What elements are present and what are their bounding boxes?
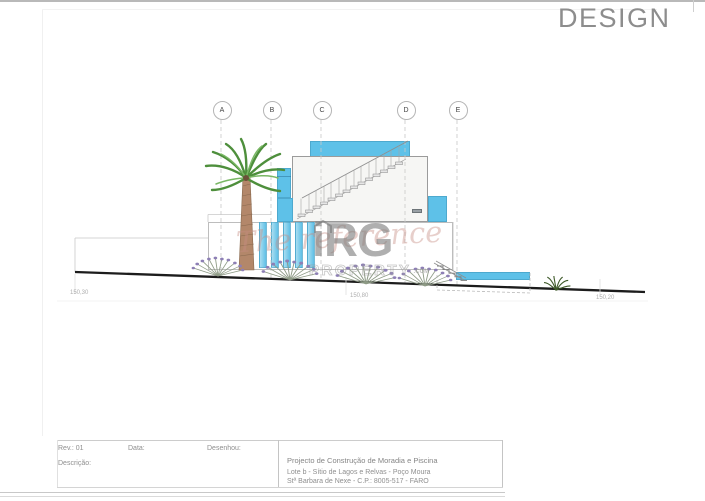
titleblock-top-border — [57, 440, 503, 441]
window-left — [277, 168, 291, 198]
louver-slat — [259, 222, 267, 268]
louver-slat — [283, 222, 291, 268]
section-marker-e: E — [449, 101, 468, 120]
elevation-label-middle: 150,80 — [350, 293, 368, 299]
drawing-frame-left — [42, 9, 43, 436]
drawing-sheet: DESIGN A B C D E — [0, 0, 705, 501]
window-divider — [277, 176, 291, 177]
ground-floor — [208, 222, 453, 270]
titleblock-divider — [278, 440, 279, 488]
blue-panel-right — [428, 196, 447, 222]
upper-floor — [292, 156, 428, 222]
grass-tussock — [544, 276, 570, 290]
titleblock-data: Data: — [128, 445, 145, 452]
marker-label: E — [456, 107, 461, 114]
marker-label: A — [220, 107, 225, 114]
ground-line — [75, 272, 645, 292]
section-marker-a: A — [213, 101, 232, 120]
section-marker-d: D — [397, 101, 416, 120]
titleblock-rev: Rev.: 01 — [58, 445, 84, 452]
titleblock-address-line2: Stª Barbara de Nexe - C.P.: 8005-517 - F… — [287, 478, 429, 485]
pool-water — [456, 272, 530, 280]
louver-slat — [271, 222, 279, 268]
sheet-bottom-rule-1 — [0, 492, 505, 493]
louver-slat — [295, 222, 303, 268]
vent-grille — [412, 209, 422, 213]
titleblock-address-line1: Lote b - Sítio de Lagos e Relvas - Poço … — [287, 469, 431, 476]
marker-label: D — [403, 107, 408, 114]
blue-panel-left — [277, 198, 293, 222]
section-marker-b: B — [263, 101, 282, 120]
titleblock-bottom-border — [57, 487, 503, 488]
marker-label: C — [319, 107, 324, 114]
titleblock-right-border — [502, 440, 503, 488]
drawing-frame-right-tick — [693, 0, 694, 12]
titleblock-project-title: Projecto de Construção de Moradia e Pisc… — [287, 456, 438, 465]
elevation-label-right: 150,20 — [596, 295, 614, 301]
louver-slat — [307, 222, 315, 268]
titleblock-desenhou: Desenhou: — [207, 445, 241, 452]
sheet-bottom-rule-2 — [0, 496, 505, 497]
design-logo-text: DESIGN — [558, 3, 671, 34]
marker-label: B — [270, 107, 275, 114]
titleblock-descricao: Descrição: — [58, 460, 91, 467]
page-top-border — [0, 0, 705, 2]
section-marker-c: C — [313, 101, 332, 120]
elevation-label-left: 150,30 — [70, 290, 88, 296]
